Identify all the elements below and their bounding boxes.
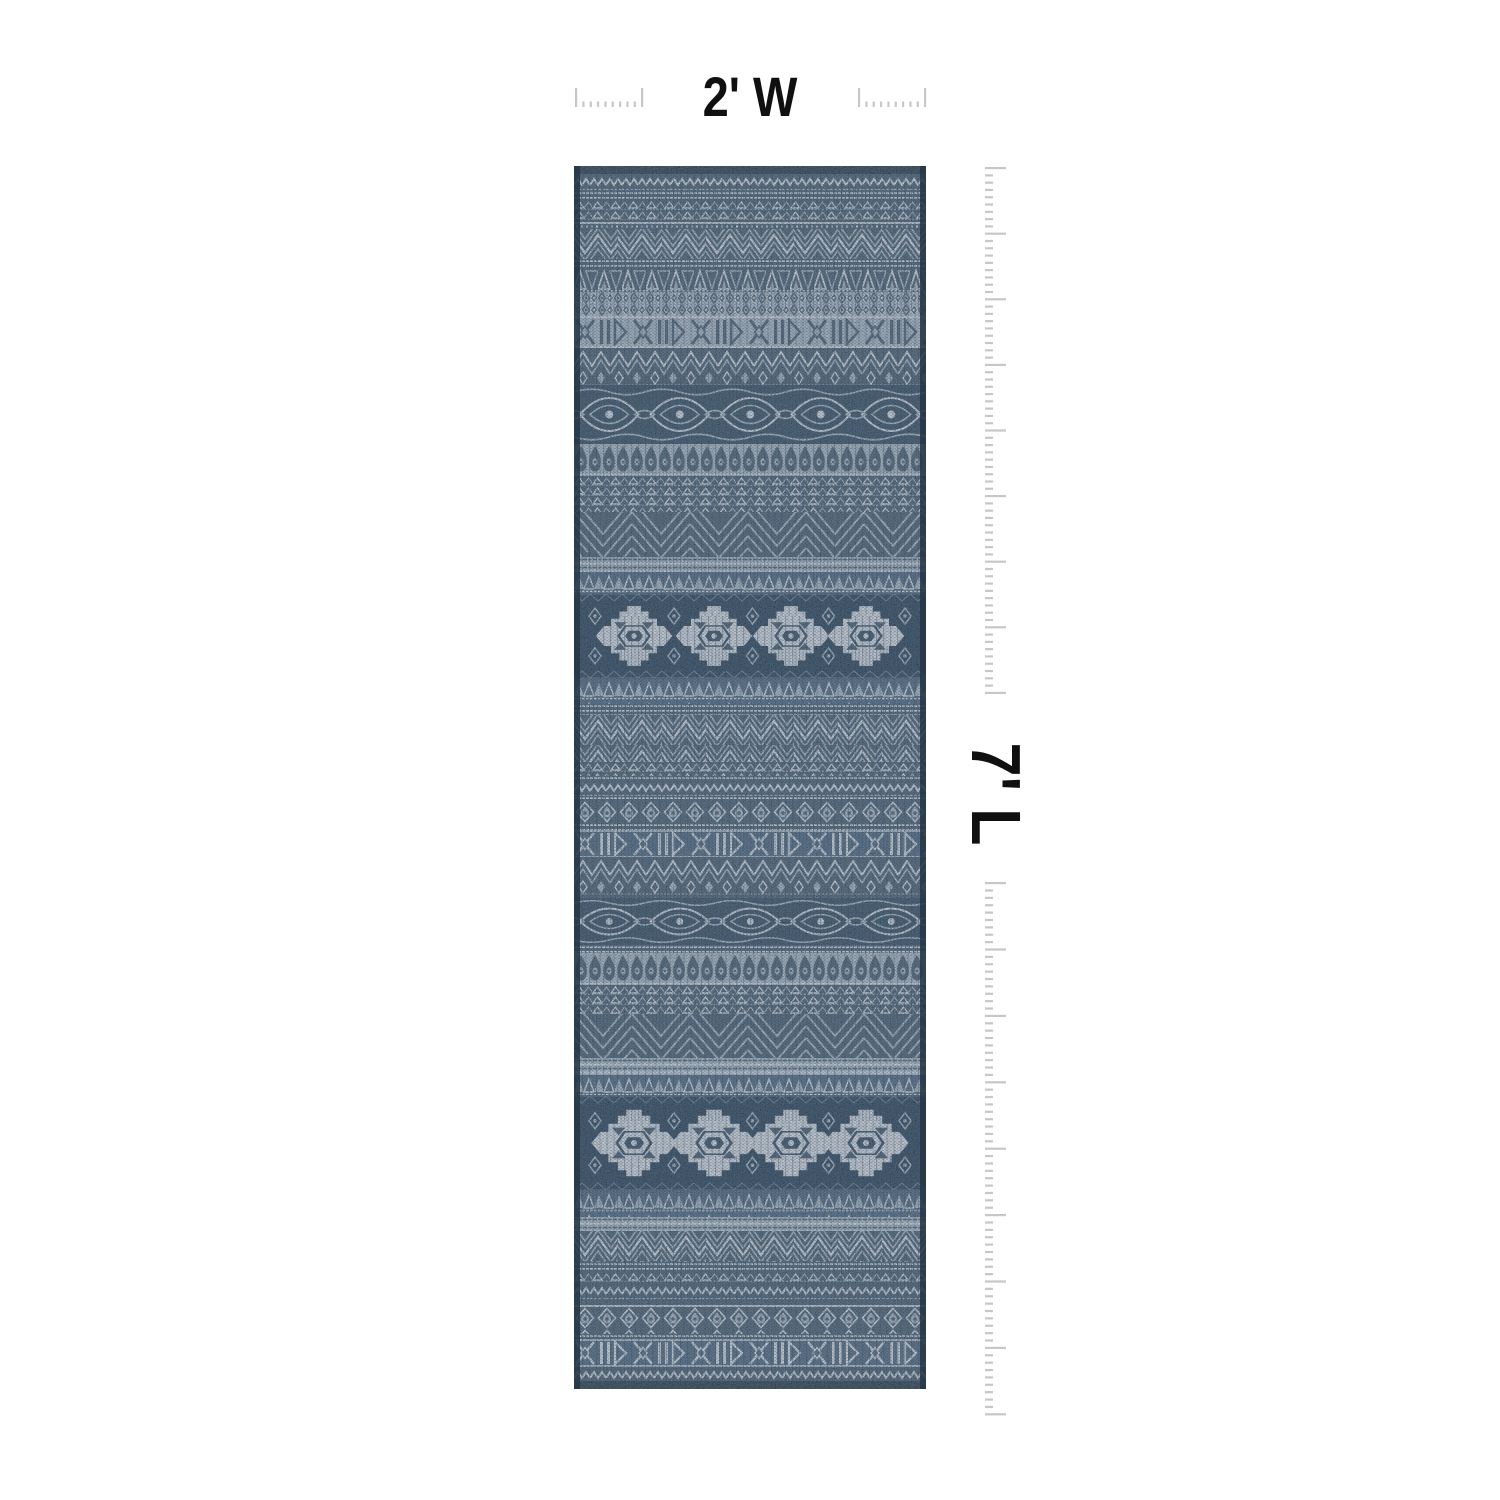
svg-text:7' L: 7' L [957,742,1036,845]
